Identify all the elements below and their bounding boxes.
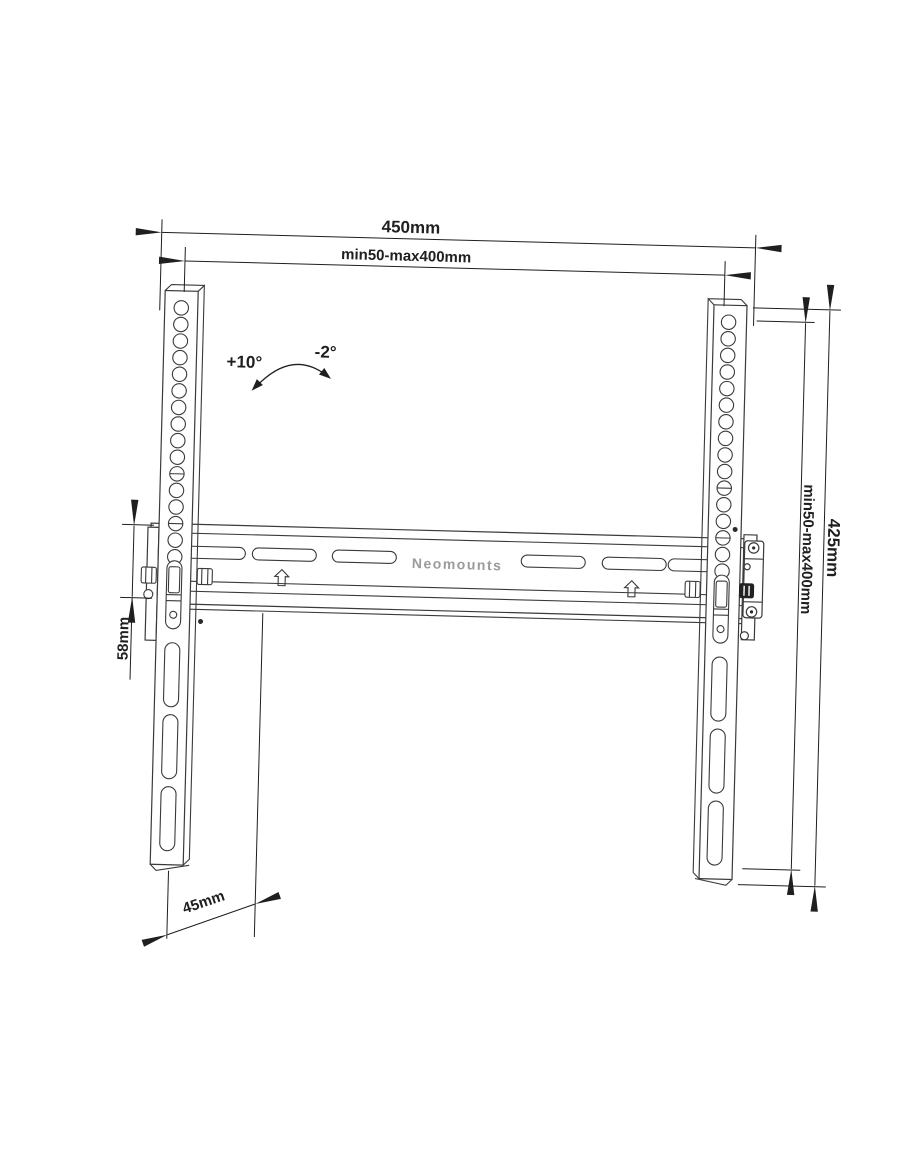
hex-bolt xyxy=(197,568,212,584)
latch-pin xyxy=(744,564,750,570)
tilt-down-label: -2° xyxy=(314,342,337,362)
tilt-arc-icon xyxy=(257,363,328,387)
bracket-slot xyxy=(709,729,726,793)
dim-vesa-width: min50-max400mm xyxy=(184,242,725,306)
tilt-slider xyxy=(716,581,728,607)
dim-plate-height-label: 58mm xyxy=(115,617,133,661)
hex-bolt xyxy=(685,581,700,597)
extension-line xyxy=(122,524,154,525)
tilt-range-annotation: +10° -2° xyxy=(226,340,337,393)
latch-foot xyxy=(740,632,748,640)
wall-plate-slot xyxy=(332,550,396,564)
washer xyxy=(144,589,153,598)
extension-line xyxy=(753,235,755,326)
dim-overall-width-label: 450mm xyxy=(381,217,440,238)
rivet xyxy=(198,619,203,624)
technical-drawing: Neomounts xyxy=(0,0,910,1155)
brand-label: Neomounts xyxy=(412,555,503,573)
extension-line xyxy=(254,613,262,937)
extension-line xyxy=(757,321,815,323)
wall-plate-slot xyxy=(521,555,585,569)
bracket-slot xyxy=(161,715,178,779)
bracket-slot xyxy=(711,657,728,721)
wall-plate: Neomounts xyxy=(149,523,757,624)
dimension-line xyxy=(815,311,830,886)
bracket-slot xyxy=(160,787,177,851)
extension-line xyxy=(738,885,826,887)
dimension-line xyxy=(162,232,756,248)
dim-bracket-height-label: 425mm xyxy=(823,518,844,577)
extension-line xyxy=(753,308,841,310)
dim-vesa-width-label: min50-max400mm xyxy=(341,246,471,266)
extension-line xyxy=(167,871,169,939)
wall-plate-slot xyxy=(602,557,666,571)
bracket-slot xyxy=(707,801,724,865)
dim-wall-distance-label: 45mm xyxy=(180,887,227,917)
hex-bolt xyxy=(141,567,156,583)
dim-vesa-height-label: min50-max400mm xyxy=(797,484,817,614)
tilt-arrowhead xyxy=(319,368,331,379)
tilt-slider xyxy=(168,567,180,593)
tilt-up-label: +10° xyxy=(226,352,262,372)
extension-line xyxy=(160,219,162,310)
latch-knob xyxy=(739,584,753,598)
dimension-line xyxy=(132,526,134,597)
bracket-slot xyxy=(163,643,180,707)
wall-plate-slot xyxy=(252,548,316,562)
